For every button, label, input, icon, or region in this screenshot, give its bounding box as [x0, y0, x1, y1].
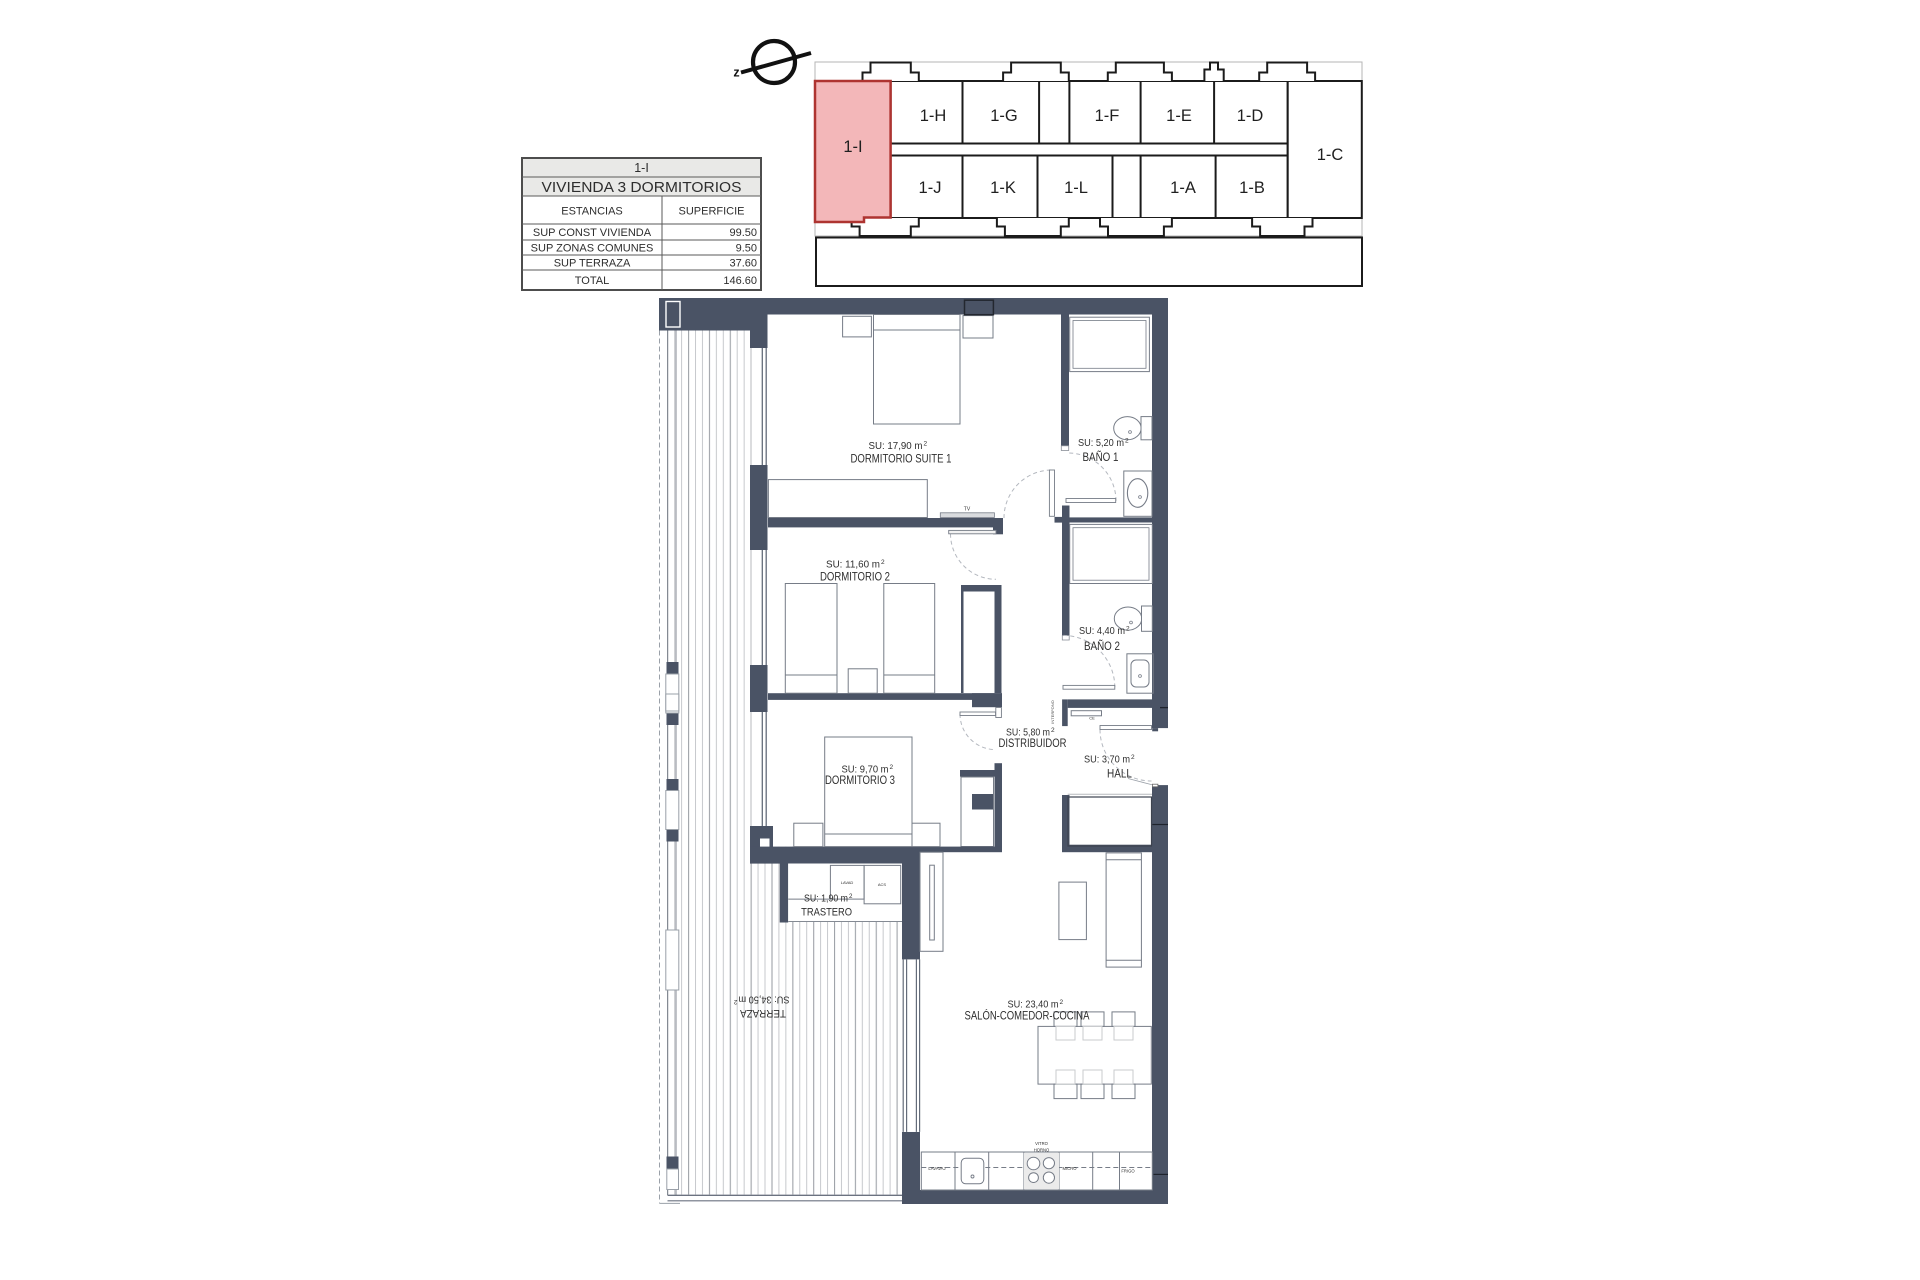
svg-text:SUP CONST VIVIENDA: SUP CONST VIVIENDA — [533, 227, 652, 239]
svg-text:1-D: 1-D — [1237, 107, 1264, 125]
svg-text:SU: 3,70 m: SU: 3,70 m — [1084, 754, 1130, 766]
svg-text:SU: 5,20 m: SU: 5,20 m — [1078, 437, 1124, 449]
svg-text:TRASTERO: TRASTERO — [801, 907, 852, 919]
svg-text:2: 2 — [1131, 754, 1135, 761]
svg-text:1-K: 1-K — [990, 179, 1016, 197]
svg-text:ACS: ACS — [878, 882, 887, 887]
svg-text:37.60: 37.60 — [729, 258, 757, 270]
svg-text:1-E: 1-E — [1166, 107, 1192, 125]
svg-text:1-I: 1-I — [843, 138, 862, 156]
svg-text:MICRO: MICRO — [1063, 1166, 1078, 1171]
svg-text:1-J: 1-J — [919, 179, 942, 197]
svg-text:1-C: 1-C — [1317, 146, 1344, 164]
svg-text:LAVAD: LAVAD — [841, 880, 854, 885]
svg-text:1-H: 1-H — [920, 107, 947, 125]
svg-text:DORMITORIO 2: DORMITORIO 2 — [820, 572, 890, 584]
svg-text:LAVAVAJ: LAVAVAJ — [928, 1166, 945, 1171]
svg-text:99.50: 99.50 — [729, 227, 757, 239]
svg-text:SU: 4,40 m: SU: 4,40 m — [1079, 625, 1125, 637]
svg-text:SUP ZONAS COMUNES: SUP ZONAS COMUNES — [531, 243, 654, 255]
svg-text:BAÑO 2: BAÑO 2 — [1084, 640, 1120, 653]
svg-text:FRIGO: FRIGO — [1121, 1168, 1135, 1173]
svg-text:TOTAL: TOTAL — [575, 275, 609, 287]
svg-text:2: 2 — [734, 998, 738, 1005]
svg-text:z: z — [733, 66, 739, 80]
svg-text:2: 2 — [890, 764, 894, 771]
svg-text:SU: 23,40 m: SU: 23,40 m — [1008, 999, 1059, 1011]
svg-text:SALÓN-COMEDOR-COCINA: SALÓN-COMEDOR-COCINA — [965, 1010, 1090, 1023]
svg-text:SU: 1,90 m: SU: 1,90 m — [804, 894, 848, 905]
svg-text:HORNO: HORNO — [1034, 1147, 1050, 1152]
svg-text:SU: 17,90 m: SU: 17,90 m — [869, 440, 923, 452]
svg-text:9.50: 9.50 — [736, 243, 757, 255]
svg-text:SU: 11,60 m: SU: 11,60 m — [826, 559, 880, 571]
svg-text:146.60: 146.60 — [723, 275, 757, 287]
svg-text:VIVIENDA 3 DORMITORIOS: VIVIENDA 3 DORMITORIOS — [542, 180, 742, 196]
svg-text:2: 2 — [1060, 999, 1064, 1006]
svg-text:1-I: 1-I — [634, 161, 649, 175]
svg-text:1-L: 1-L — [1064, 179, 1088, 197]
svg-text:2: 2 — [849, 893, 853, 900]
svg-text:2: 2 — [924, 441, 928, 448]
svg-text:1-F: 1-F — [1095, 107, 1120, 125]
svg-text:VITRO: VITRO — [1035, 1141, 1049, 1146]
svg-text:HALL: HALL — [1107, 769, 1133, 781]
svg-text:2: 2 — [1125, 438, 1129, 445]
svg-text:DISTRIBUIDOR: DISTRIBUIDOR — [999, 738, 1067, 750]
svg-text:SU: 34,50 m: SU: 34,50 m — [738, 994, 789, 1006]
svg-text:1-B: 1-B — [1239, 179, 1265, 197]
svg-text:1-A: 1-A — [1170, 179, 1196, 197]
svg-text:2: 2 — [1051, 727, 1055, 734]
svg-text:TV: TV — [964, 507, 971, 513]
svg-text:DORMITORIO 3: DORMITORIO 3 — [825, 775, 895, 787]
svg-text:CE: CE — [1089, 716, 1095, 721]
svg-text:INTERFONO: INTERFONO — [1050, 700, 1055, 724]
svg-text:ESTANCIAS: ESTANCIAS — [561, 206, 623, 218]
svg-text:SUPERFICIE: SUPERFICIE — [678, 206, 744, 218]
svg-text:2: 2 — [1126, 626, 1130, 633]
svg-text:TERRAZA: TERRAZA — [739, 1007, 786, 1019]
svg-text:SU: 9,70 m: SU: 9,70 m — [842, 764, 889, 776]
svg-text:2: 2 — [881, 559, 885, 566]
svg-text:BAÑO 1: BAÑO 1 — [1083, 451, 1119, 464]
svg-text:SU: 5,80 m: SU: 5,80 m — [1006, 727, 1050, 739]
svg-text:1-G: 1-G — [990, 107, 1018, 125]
svg-text:SUP TERRAZA: SUP TERRAZA — [554, 258, 631, 270]
svg-text:DORMITORIO SUITE 1: DORMITORIO SUITE 1 — [851, 454, 952, 466]
